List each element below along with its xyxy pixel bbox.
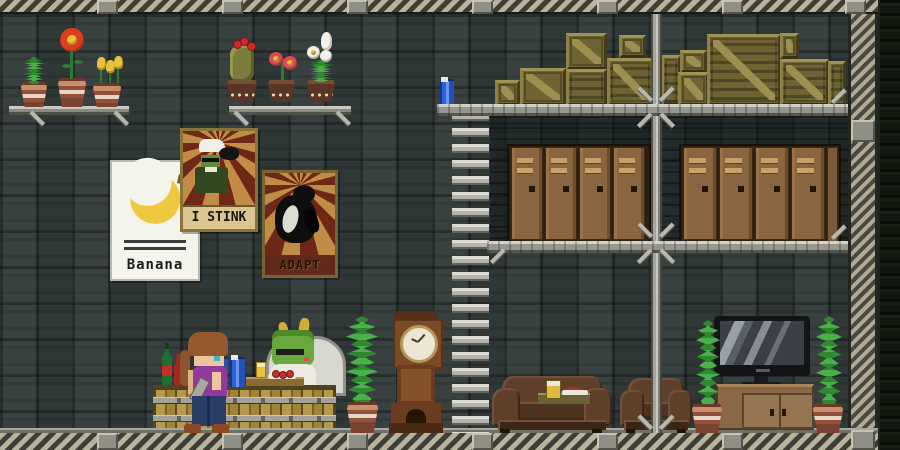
locker-handle xyxy=(631,186,637,192)
cargo-crate[interactable] xyxy=(680,50,707,73)
locker-door[interactable] xyxy=(719,147,753,240)
cargo-crate[interactable] xyxy=(495,80,520,106)
hour-hand xyxy=(411,338,418,343)
tulip-bloom xyxy=(114,56,123,69)
tv-brand-strip xyxy=(756,369,770,372)
locker-vent-slat xyxy=(761,158,779,164)
candle xyxy=(256,362,266,378)
sofa[interactable] xyxy=(492,376,612,433)
hazard-ceiling xyxy=(0,0,878,14)
locker-vent-slat xyxy=(517,168,534,174)
cabinet-handle xyxy=(782,409,786,416)
locker-door[interactable] xyxy=(791,147,825,240)
locker-vent-slat xyxy=(551,168,568,174)
locker-vent-slat xyxy=(797,168,815,174)
dark-cave-edge xyxy=(878,0,900,450)
upper-platform xyxy=(437,104,848,116)
flatscreen-tv[interactable] xyxy=(714,316,810,376)
cactus-flower xyxy=(247,42,256,51)
lily-bloom xyxy=(320,50,332,62)
sofa-base xyxy=(498,420,606,430)
locker-vent-slat xyxy=(725,168,743,174)
sofa-foot xyxy=(500,429,510,433)
player-arm xyxy=(212,372,221,390)
locker-bank xyxy=(507,144,651,243)
locker-door[interactable] xyxy=(545,147,577,240)
flower-pot xyxy=(307,80,335,102)
cargo-crate[interactable] xyxy=(566,33,607,70)
locker-vent-slat xyxy=(585,168,602,174)
poster-stink-caption: I STINK xyxy=(183,205,255,229)
floor-plate xyxy=(472,433,493,450)
locker-vent-slat xyxy=(585,158,602,164)
locker-door[interactable] xyxy=(755,147,789,240)
locker-handle xyxy=(529,186,535,192)
cargo-crate[interactable] xyxy=(780,33,799,59)
terracotta-pot xyxy=(347,402,378,433)
poster-text-line xyxy=(124,240,186,243)
canister-cap xyxy=(441,77,448,82)
locker-vent-slat xyxy=(689,168,707,174)
poster-adapt-caption: ADAPT xyxy=(265,255,335,275)
flower-center xyxy=(273,56,279,62)
armchair-foot xyxy=(626,429,635,433)
cargo-crate[interactable] xyxy=(619,35,646,58)
ladder[interactable] xyxy=(452,112,489,433)
grandfather-clock[interactable] xyxy=(391,311,441,433)
locker-door[interactable] xyxy=(683,147,717,240)
chef-hair xyxy=(219,147,239,160)
player-hair xyxy=(188,332,228,356)
locker-handle xyxy=(702,186,708,192)
floor-plate xyxy=(347,433,368,450)
locker-door[interactable] xyxy=(511,147,543,240)
cabinet-handle xyxy=(770,409,774,416)
locker-vent-slat xyxy=(761,168,779,174)
floor-plate xyxy=(597,433,618,450)
flower-pot xyxy=(93,83,121,107)
cargo-crate[interactable] xyxy=(520,68,566,106)
player-shoe xyxy=(184,424,201,433)
player-shoe xyxy=(212,424,229,433)
player-character xyxy=(168,330,238,433)
sofa-foot xyxy=(592,429,602,433)
locker-vent-slat xyxy=(517,158,534,164)
player-jeans xyxy=(192,396,226,426)
flower-center xyxy=(311,50,316,55)
cabinet-door[interactable] xyxy=(742,393,782,429)
flower-center xyxy=(67,35,77,45)
support-pole xyxy=(651,14,662,433)
poster-banana-caption: Banana xyxy=(112,257,198,273)
cargo-crate[interactable] xyxy=(566,69,607,106)
poster-i-stink: I STINK xyxy=(180,128,258,232)
clock-pendulum-panel xyxy=(401,369,431,401)
locker-vent-slat xyxy=(797,158,815,164)
chef-sunglasses xyxy=(202,158,219,162)
flower-pot xyxy=(21,82,47,107)
tv-cabinet[interactable] xyxy=(716,384,814,430)
floor-plate xyxy=(722,433,743,450)
ceiling-plate xyxy=(722,0,743,14)
locker-vent-slat xyxy=(619,168,636,174)
chef-scarf xyxy=(205,167,217,172)
locker-door[interactable] xyxy=(579,147,611,240)
locker-vent-slat xyxy=(551,158,568,164)
flower-stem xyxy=(70,48,73,79)
ceiling-plate xyxy=(97,0,118,14)
locker-bank xyxy=(679,144,841,243)
locker-handle xyxy=(597,186,603,192)
column-plate xyxy=(851,120,875,142)
terracotta-pot xyxy=(692,404,722,433)
floor-plate xyxy=(222,433,243,450)
column-plate xyxy=(851,430,875,450)
game-viewport: Banana I STINK ADAPT xyxy=(0,0,900,450)
clock-plinth xyxy=(389,423,443,433)
hazard-floor xyxy=(0,433,878,450)
hazard-column xyxy=(848,14,878,428)
flower-pot xyxy=(227,80,257,102)
sofa-seat xyxy=(514,402,590,420)
cargo-crate[interactable] xyxy=(780,59,829,106)
dragon-cheek xyxy=(304,357,309,361)
berry xyxy=(286,370,294,378)
food-plate xyxy=(562,390,588,395)
locker-vent-slat xyxy=(689,158,707,164)
tulip-bloom xyxy=(97,57,106,70)
locker-handle xyxy=(563,186,569,192)
locker-vent-slat xyxy=(725,158,743,164)
ceiling-plate xyxy=(597,0,618,14)
armchair-foot xyxy=(677,429,686,433)
ceiling-plate xyxy=(347,0,368,14)
floor-plate xyxy=(97,433,118,450)
locker-handle xyxy=(810,186,816,192)
juice-box xyxy=(546,380,561,399)
poster-text-line xyxy=(124,247,186,250)
penguin-head xyxy=(293,185,315,203)
dragon-sunglasses xyxy=(276,349,304,355)
flower-pot xyxy=(268,80,295,102)
poster-adapt: ADAPT xyxy=(262,170,338,278)
locker-vent-slat xyxy=(619,158,636,164)
terracotta-pot xyxy=(813,404,843,433)
flower-leaf xyxy=(62,64,71,68)
locker-side-panel xyxy=(827,147,838,242)
cargo-crate[interactable] xyxy=(707,34,781,106)
clock-face xyxy=(400,325,438,363)
lower-platform xyxy=(487,241,848,253)
ceiling-plate xyxy=(845,0,866,14)
flower-center xyxy=(287,60,293,66)
lily-bud xyxy=(321,32,332,50)
cargo-crate[interactable] xyxy=(678,72,709,106)
flower-leaf xyxy=(74,60,83,64)
locker-handle xyxy=(774,186,780,192)
flower-pot xyxy=(58,78,86,107)
tv-screen xyxy=(720,321,804,365)
ceiling-plate xyxy=(222,0,243,14)
minute-hand xyxy=(417,334,425,343)
ceiling-plate xyxy=(472,0,493,14)
locker-handle xyxy=(738,186,744,192)
